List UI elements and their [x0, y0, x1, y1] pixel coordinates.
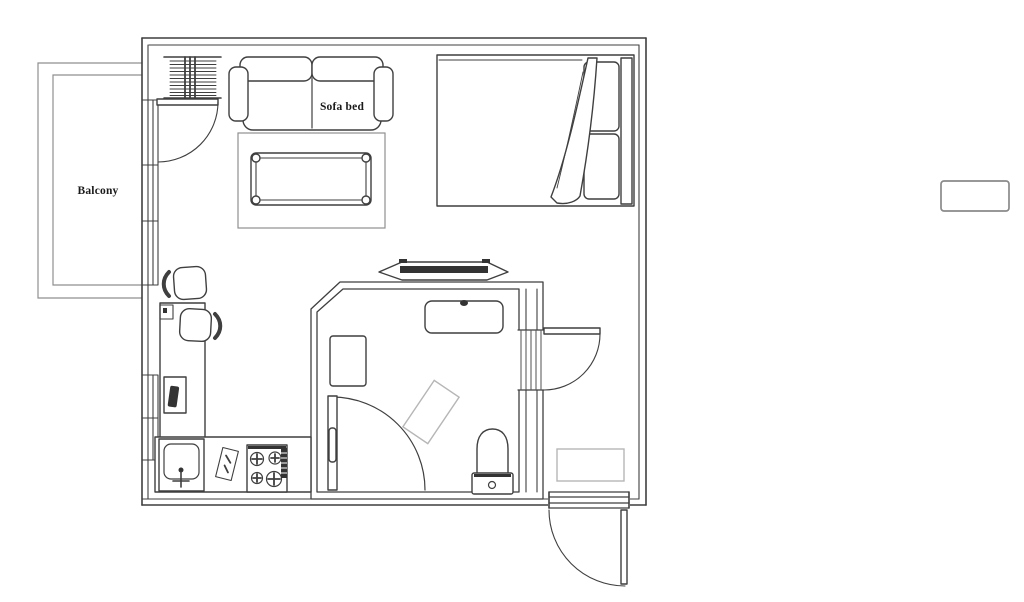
stove [247, 445, 287, 492]
floor-plan-svg: Balcony Sofa bed [0, 0, 1024, 602]
sofa-back-right [312, 57, 383, 81]
table-knob [362, 154, 370, 162]
bathroom-door-swing-arc [544, 334, 600, 390]
chair-seat-1 [173, 266, 207, 300]
sofa-armrest-right [374, 67, 393, 121]
balcony-door [157, 99, 218, 162]
bath-mat [403, 380, 459, 443]
toilet [472, 429, 513, 494]
kitchen [155, 303, 311, 492]
tv [379, 259, 508, 280]
tv-bracket-left [399, 259, 407, 263]
bath-mat-rect [403, 380, 459, 443]
window-balcony-glazing [142, 100, 158, 285]
chair-back-left [164, 272, 169, 296]
balcony-inner-edge [53, 75, 142, 285]
bathroom-door [518, 328, 600, 390]
toilet-tank-edge [474, 474, 511, 477]
sofa-bed: Sofa bed [229, 57, 393, 130]
sofa-bed-label: Sofa bed [320, 101, 365, 113]
kitchen-sink [159, 439, 204, 491]
entry-hallway [557, 449, 624, 481]
bed-headboard [621, 58, 632, 204]
tv-screen [400, 266, 488, 273]
toilet-bowl [477, 429, 508, 475]
coffee-table-area [238, 133, 385, 228]
shower-door-handle [329, 428, 336, 462]
balcony-door-leaf [157, 99, 218, 105]
balcony-label: Balcony [77, 185, 118, 197]
coat-rack-caps [164, 57, 221, 98]
table-knob [362, 196, 370, 204]
washing-machine [330, 336, 366, 386]
coat-rack [164, 57, 221, 98]
entrance-door [548, 489, 630, 586]
sofa-armrest-left [229, 67, 248, 121]
chair-seat-2 [179, 308, 212, 342]
shower-screen-arc [332, 397, 425, 490]
balcony: Balcony [38, 63, 142, 298]
coffee-table-top [251, 153, 371, 205]
side-legend-box [941, 181, 1009, 211]
left-wall-windows [142, 100, 158, 460]
table-knob [252, 154, 260, 162]
bathroom-door-leaf [544, 328, 600, 334]
chair-back-right [215, 314, 220, 338]
floor-plan-canvas: Balcony Sofa bed [0, 0, 1024, 602]
bathroom-sink-faucet [460, 300, 468, 306]
door-mat [557, 449, 624, 481]
stove-top-edge [248, 446, 286, 449]
entrance-door-swing-arc [549, 510, 625, 586]
table-knob [252, 196, 260, 204]
bed [437, 55, 634, 206]
tv-bracket-right [482, 259, 490, 263]
sofa-back-left [240, 57, 312, 81]
entrance-door-leaf [621, 510, 627, 584]
coat-rack-posts [185, 57, 195, 98]
coat-rack-stripes [170, 61, 216, 96]
balcony-door-swing-arc [158, 102, 218, 162]
counter-corner-item [163, 308, 167, 313]
bed-pillow-bottom [584, 134, 619, 199]
